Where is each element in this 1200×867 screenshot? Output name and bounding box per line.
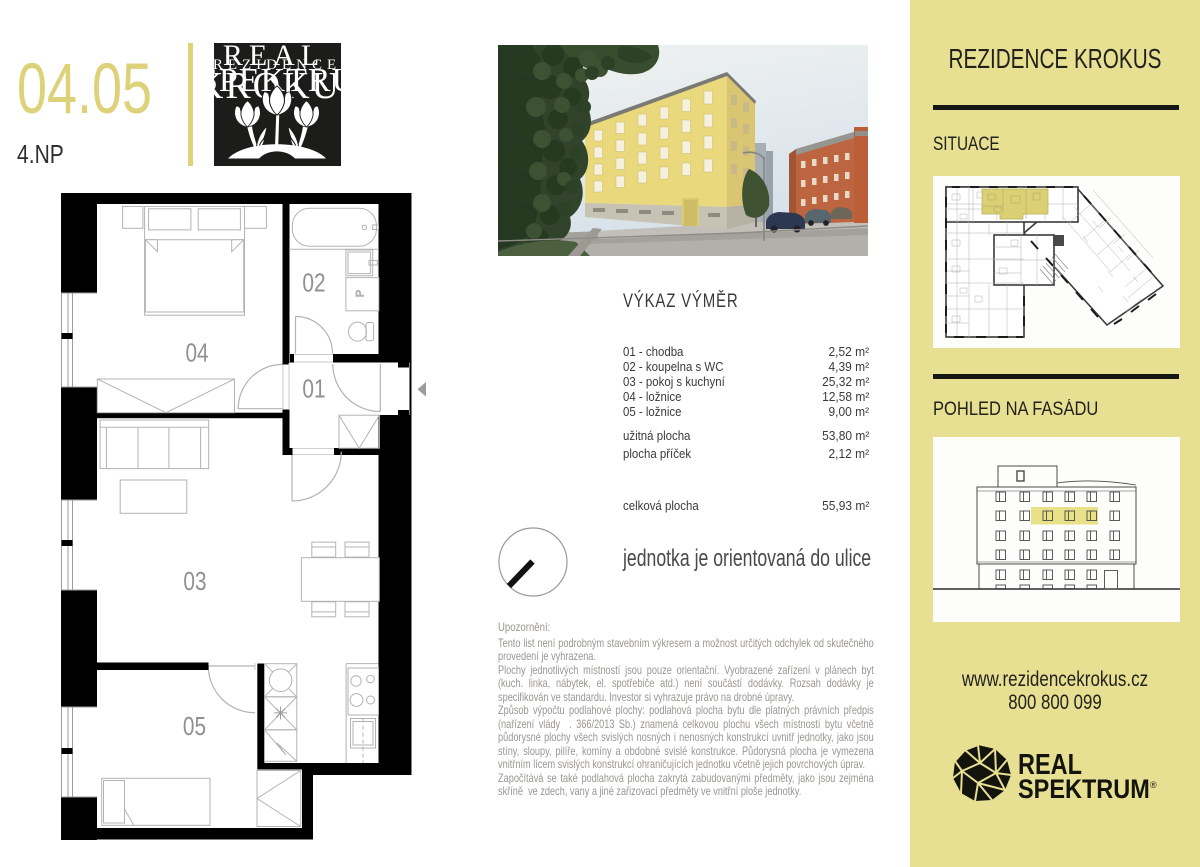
svg-text:04: 04: [185, 338, 208, 367]
svg-text:01: 01: [302, 374, 325, 403]
svg-text:05: 05: [183, 712, 206, 741]
svg-text:®: ®: [1150, 780, 1157, 790]
svg-text:P: P: [355, 290, 367, 297]
svg-text:03: 03: [183, 567, 206, 596]
svg-text:02: 02: [302, 268, 325, 297]
svg-text:SPEKTRUM: SPEKTRUM: [1018, 774, 1150, 804]
